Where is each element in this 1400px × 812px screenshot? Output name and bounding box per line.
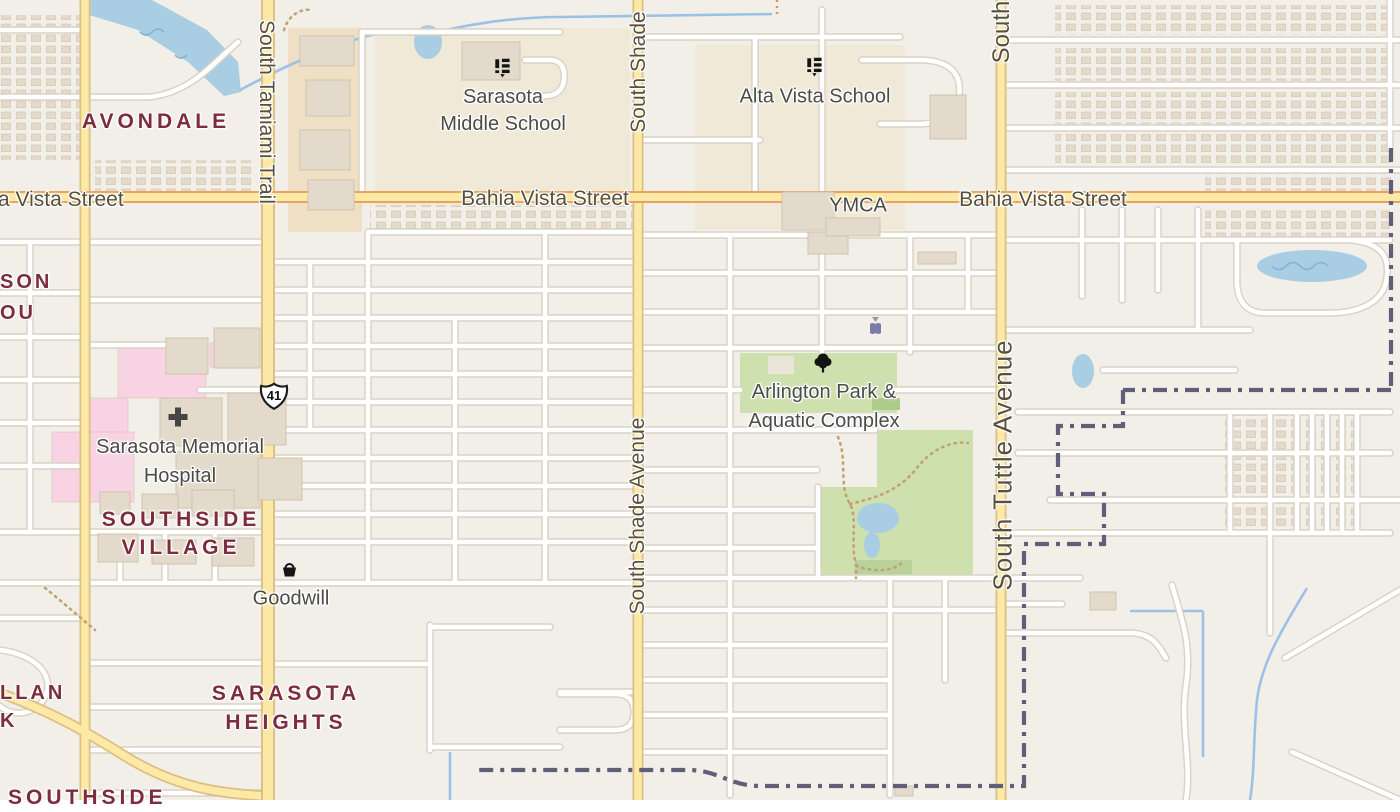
poi-label-alta-vista-school: Alta Vista School	[740, 84, 891, 111]
arlington-park-line2: Aquatic Complex	[748, 407, 899, 436]
southside-village-line1: SOUTHSIDE	[102, 506, 261, 534]
hospital-line2: Hospital	[96, 462, 264, 491]
hospital-line1: Sarasota Memorial	[96, 433, 264, 462]
ymca-building	[826, 218, 880, 236]
stream	[1250, 588, 1307, 800]
neighborhood-label-partial-llan: LLAN	[0, 680, 65, 707]
street-label-shade-avenue-top: South Shade	[625, 11, 653, 132]
neighborhood-label-sarasota-heights: SARASOTA HEIGHTS	[212, 679, 360, 737]
neighborhood-label-avondale: AVONDALE	[82, 108, 230, 136]
neighborhood-label-partial-k: K	[0, 708, 17, 735]
route-number: 41	[258, 388, 290, 403]
street-label-bahia-vista-left: a Vista Street	[0, 186, 124, 214]
street-label-tuttle-avenue: South Tuttle Avenue	[985, 339, 1020, 590]
creek	[86, 0, 241, 96]
park-pond	[857, 503, 899, 533]
neighborhood-label-southside-village: SOUTHSIDE VILLAGE	[102, 506, 261, 562]
sarasota-middle-school-line2: Middle School	[440, 111, 566, 138]
street-label-shade-avenue: South Shade Avenue	[624, 418, 652, 615]
neighborhood-label-partial-son: SON	[0, 269, 52, 296]
arlington-park-lower	[817, 430, 973, 578]
pond	[1257, 250, 1367, 282]
southside-village-line2: VILLAGE	[102, 534, 261, 562]
poi-label-sarasota-memorial-hospital: Sarasota Memorial Hospital	[96, 433, 264, 491]
poi-label-sarasota-middle-school: Sarasota Middle School	[440, 84, 566, 138]
street-label-tuttle-avenue-top: South	[986, 1, 1018, 64]
pond	[1072, 354, 1094, 388]
street-label-bahia-vista-right: Bahia Vista Street	[959, 186, 1127, 214]
map-canvas[interactable]: AVONDALE SOUTHSIDE VILLAGE SARASOTA HEIG…	[0, 0, 1400, 800]
poi-label-ymca: YMCA	[829, 193, 887, 220]
sarasota-heights-line1: SARASOTA	[212, 679, 360, 708]
street-label-tamiami-trail: South Tamiami Trail	[252, 20, 280, 204]
sarasota-middle-school-line1: Sarasota	[440, 84, 566, 111]
arlington-park-line1: Arlington Park &	[748, 378, 899, 407]
poi-label-arlington-park: Arlington Park & Aquatic Complex	[748, 378, 899, 436]
neighborhood-label-partial-ou: OU	[0, 300, 36, 327]
sarasota-heights-line2: HEIGHTS	[212, 708, 360, 737]
neighborhood-label-partial-southside: SOUTHSIDE	[8, 784, 167, 812]
poi-label-goodwill: Goodwill	[253, 586, 330, 613]
us-41-route-shield: 41	[258, 381, 290, 411]
street-label-bahia-vista-center: Bahia Vista Street	[461, 185, 629, 213]
